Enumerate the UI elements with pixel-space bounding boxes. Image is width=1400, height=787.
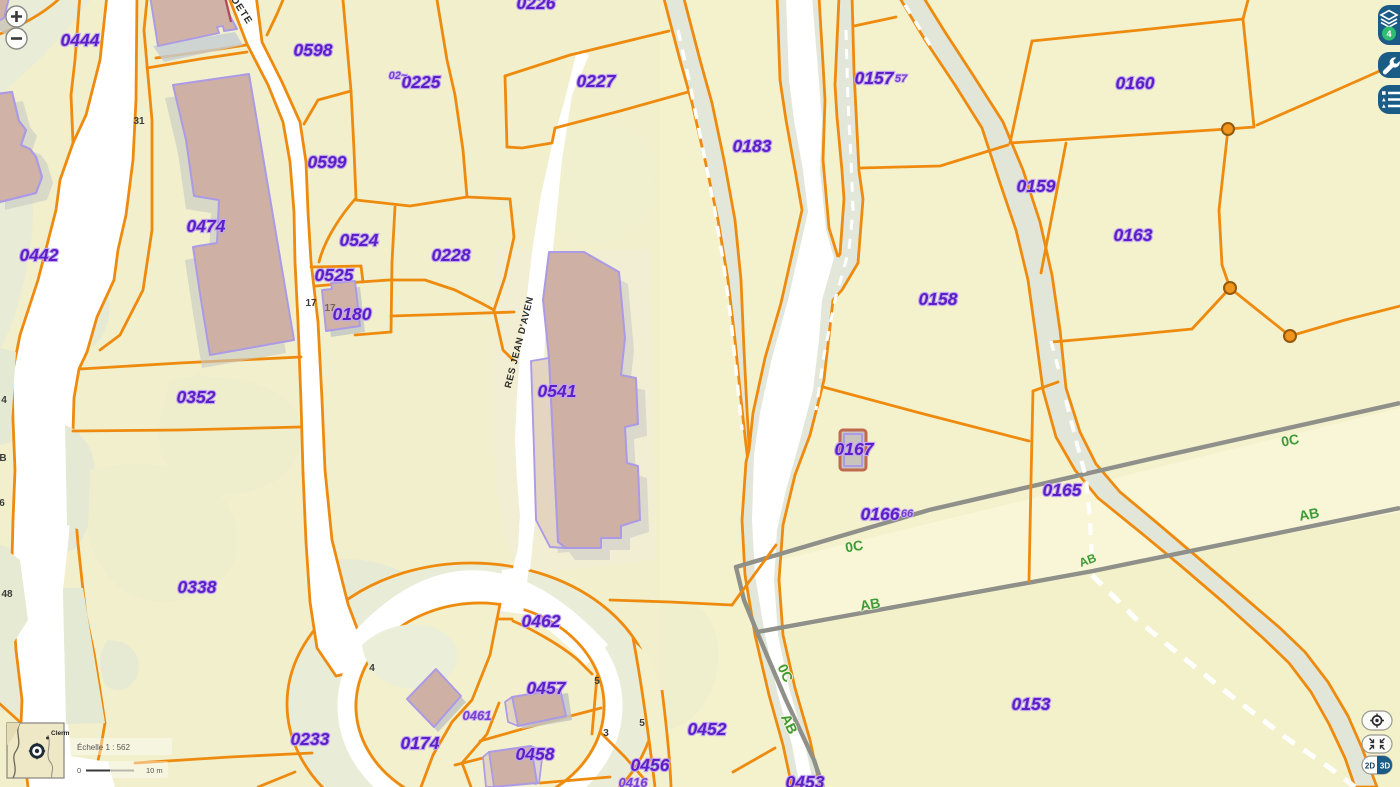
svg-text:0157: 0157 [855,68,895,88]
svg-text:0457: 0457 [527,678,567,698]
svg-text:0165: 0165 [1043,480,1082,500]
svg-text:66: 66 [901,508,914,520]
svg-text:0442: 0442 [20,245,59,265]
svg-text:0352: 0352 [177,387,216,407]
svg-text:0524: 0524 [340,230,379,250]
svg-text:0416: 0416 [619,775,649,787]
svg-text:B: B [0,453,7,464]
svg-text:0338: 0338 [178,577,217,597]
svg-text:10 m: 10 m [146,766,163,775]
svg-text:0158: 0158 [919,289,958,309]
svg-text:0456: 0456 [631,755,670,775]
svg-text:57: 57 [895,73,908,85]
svg-text:0452: 0452 [688,719,727,739]
svg-text:Clerm: Clerm [51,730,70,737]
svg-text:0180: 0180 [333,304,372,324]
svg-text:4: 4 [1,395,7,406]
svg-text:5: 5 [639,718,645,729]
svg-text:4: 4 [1386,29,1391,39]
svg-text:0462: 0462 [522,611,561,631]
svg-text:0599: 0599 [308,152,347,172]
svg-text:0C: 0C [1280,431,1301,450]
svg-text:0228: 0228 [432,245,471,265]
svg-text:48: 48 [1,589,13,600]
svg-text:0474: 0474 [187,216,226,236]
svg-text:0453: 0453 [786,772,825,787]
svg-text:2D: 2D [1365,762,1375,771]
svg-text:Échelle 1 : 562: Échelle 1 : 562 [77,743,130,752]
svg-text:0541: 0541 [538,381,577,401]
svg-text:0174: 0174 [401,733,440,753]
svg-text:31: 31 [133,116,145,127]
svg-text:0163: 0163 [1114,225,1153,245]
svg-text:0183: 0183 [733,136,772,156]
svg-text:0153: 0153 [1012,694,1051,714]
svg-text:3: 3 [603,728,609,739]
svg-text:0458: 0458 [516,744,555,764]
svg-text:3D: 3D [1380,762,1390,771]
svg-text:0167: 0167 [835,439,875,459]
svg-text:17: 17 [305,298,317,309]
svg-text:6: 6 [0,498,5,509]
svg-text:0227: 0227 [577,71,617,91]
svg-text:0159: 0159 [1017,176,1056,196]
svg-text:0C: 0C [844,537,864,556]
svg-text:5: 5 [594,676,600,687]
svg-text:0444: 0444 [61,30,100,50]
svg-text:4: 4 [369,663,375,674]
svg-text:0225: 0225 [402,72,441,92]
svg-text:0525: 0525 [315,265,354,285]
svg-text:0461: 0461 [463,708,492,723]
svg-text:0166: 0166 [861,504,900,524]
svg-text:0160: 0160 [1116,73,1155,93]
svg-text:0: 0 [77,766,81,775]
svg-text:17: 17 [324,303,336,314]
svg-text:0226: 0226 [517,0,556,13]
svg-text:02~: 02~ [389,70,408,82]
svg-text:0233: 0233 [291,729,330,749]
svg-text:0598: 0598 [294,40,333,60]
